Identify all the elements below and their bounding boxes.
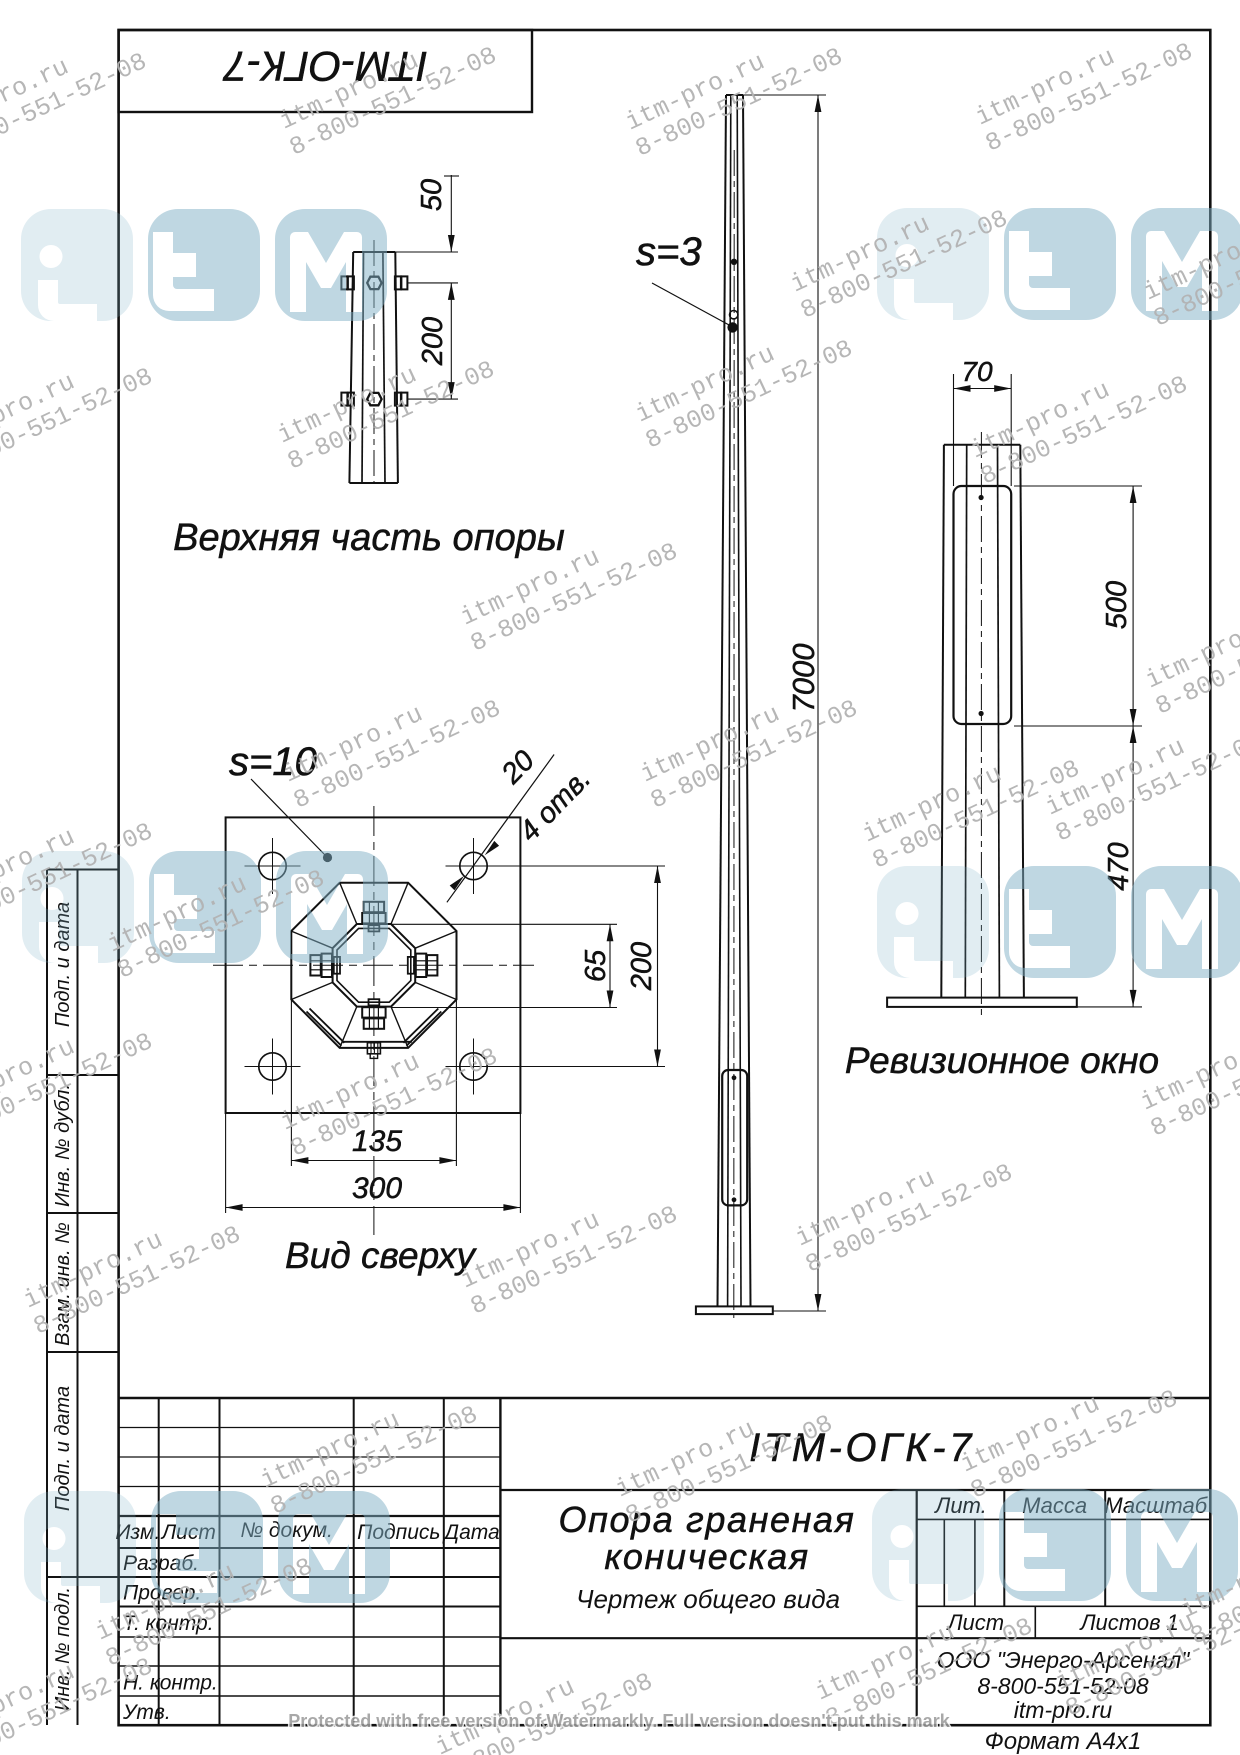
svg-text:коническая: коническая (604, 1536, 809, 1577)
svg-text:300: 300 (352, 1172, 402, 1205)
svg-text:65: 65 (580, 949, 612, 982)
svg-text:8-800-551-52-08: 8-800-551-52-08 (0, 47, 151, 168)
svg-text:s=3: s=3 (636, 230, 702, 274)
svg-text:Формат А4х1: Формат А4х1 (985, 1728, 1142, 1755)
svg-text:Protected with free version of: Protected with free version of Watermark… (288, 1711, 950, 1731)
svg-text:50: 50 (416, 179, 448, 211)
svg-text:Верхняя часть опоры: Верхняя часть опоры (173, 517, 565, 559)
svg-text:Ревизионное окно: Ревизионное окно (845, 1040, 1159, 1081)
svg-text:20: 20 (495, 745, 541, 791)
svg-text:8-800-551-52-08: 8-800-551-52-08 (0, 362, 157, 483)
svg-text:8-800-551-52-08: 8-800-551-52-08 (0, 1027, 157, 1148)
svg-text:Инв. № дубл.: Инв. № дубл. (52, 1084, 74, 1207)
svg-text:Вид сверху: Вид сверху (285, 1235, 477, 1276)
svg-text:Опора граненая: Опора граненая (559, 1499, 856, 1540)
svg-text:Чертеж общего вида: Чертеж общего вида (576, 1584, 840, 1614)
svg-text:Утв.: Утв. (122, 1701, 171, 1724)
svg-text:500: 500 (1101, 581, 1133, 629)
svg-text:70: 70 (961, 356, 993, 387)
svg-text:200: 200 (626, 942, 658, 991)
svg-text:200: 200 (417, 317, 449, 366)
svg-text:7000: 7000 (786, 644, 821, 713)
svg-text:Дата: Дата (442, 1521, 499, 1544)
